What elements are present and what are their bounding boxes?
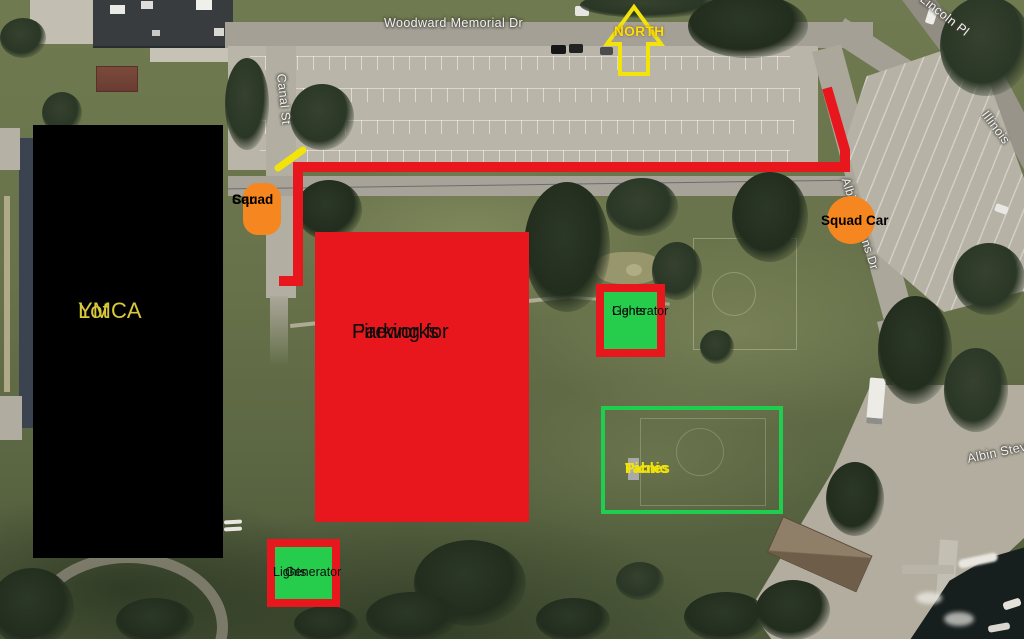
aerial-map: Woodward Memorial Dr Canal St Lincoln Pl… [0, 0, 1024, 639]
bleachers [19, 138, 34, 428]
goal-mark [224, 520, 242, 525]
roof-unit [214, 28, 224, 36]
tree [294, 606, 358, 639]
tree [536, 598, 610, 639]
tree [684, 592, 768, 639]
car [600, 47, 613, 55]
canal-st-road-tail [270, 296, 288, 366]
tree [756, 580, 830, 639]
track-straight [4, 196, 10, 392]
tree [366, 592, 458, 639]
roof-unit [196, 0, 212, 10]
tables-word: Tables [625, 462, 670, 477]
generator-lights-bottom: Generator Lights [267, 539, 340, 607]
goal-mark [224, 527, 242, 532]
ymca-lot-overlay: YMCA Lot [33, 125, 223, 558]
tree [606, 178, 678, 236]
tree [953, 243, 1024, 315]
tree [732, 172, 808, 262]
tree [290, 84, 354, 150]
tree [0, 18, 46, 58]
picnic-tables-outline: Picnic Tables [601, 406, 783, 514]
generator-lights-top: Generator Lights [596, 284, 665, 357]
tree [944, 348, 1008, 432]
tree [878, 296, 952, 404]
roof-unit [110, 5, 125, 14]
pier [902, 565, 954, 574]
squad-car-left-marker [243, 183, 281, 235]
concrete-pad [0, 128, 20, 170]
foam [916, 592, 942, 604]
parking-stripes [260, 150, 790, 163]
foam [944, 612, 974, 626]
tree [296, 180, 362, 240]
street-label-woodward: Woodward Memorial Dr [384, 16, 523, 30]
fireworks-parking-overlay: Parking for Fireworks [315, 232, 529, 522]
field-lines [712, 272, 756, 316]
north-label: NORTH [614, 25, 665, 39]
car [569, 44, 583, 53]
concrete-pad [0, 396, 22, 440]
roof-unit [141, 1, 153, 9]
squad-car-right-label: Squad Car [821, 214, 889, 228]
roof-unit [152, 30, 160, 36]
sand-patch [626, 264, 642, 276]
car [551, 45, 566, 54]
tree [616, 562, 664, 600]
tree [700, 330, 734, 364]
tree [826, 462, 884, 536]
shed [96, 66, 138, 92]
picnic-label: Picnic Tables [625, 458, 642, 480]
parking-stripes [250, 56, 790, 70]
concrete-pad [150, 48, 235, 62]
tree [116, 598, 194, 639]
tree [225, 58, 269, 150]
